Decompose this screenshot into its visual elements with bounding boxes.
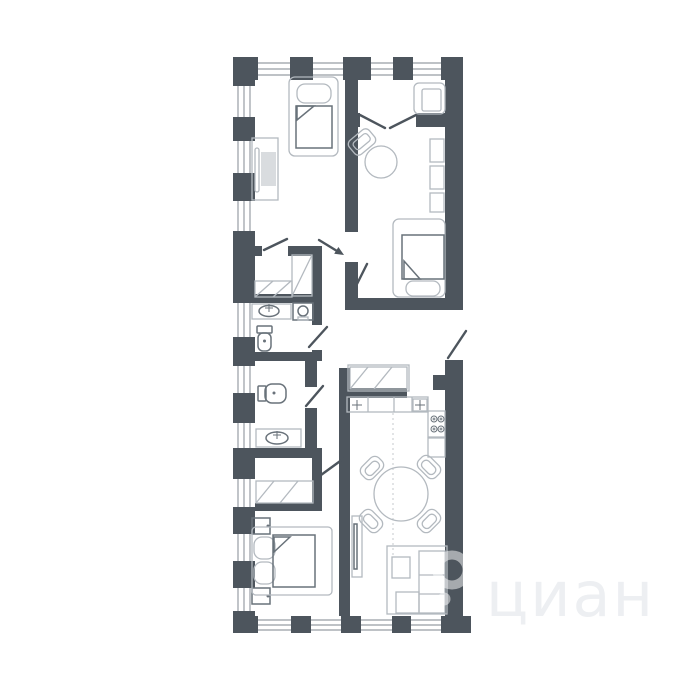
kitchen-sink-icon bbox=[352, 400, 362, 410]
room-alcove bbox=[414, 83, 445, 114]
wardrobe-hangers-icon bbox=[256, 481, 313, 503]
door-swing-icon bbox=[264, 239, 287, 250]
room-closet-upper bbox=[255, 255, 312, 297]
entrance-arrow-icon bbox=[319, 240, 344, 255]
hallway bbox=[348, 365, 409, 391]
room-kitchen-living bbox=[347, 397, 447, 614]
shelf-unit-icon bbox=[292, 255, 312, 296]
kitchen-counter-icon bbox=[347, 397, 428, 412]
dining-chair-icon bbox=[415, 507, 443, 535]
floor-plan-image: циан bbox=[0, 0, 700, 700]
bathroom-sink-icon bbox=[252, 304, 291, 319]
dining-table-icon bbox=[374, 467, 428, 521]
wardrobe-hangers-icon bbox=[348, 365, 409, 391]
single-bed-icon bbox=[393, 219, 445, 297]
door-swing-icon bbox=[390, 115, 416, 128]
single-bed-icon bbox=[289, 77, 338, 156]
floor-plan-page: циан bbox=[0, 0, 700, 700]
desk-chair-icon bbox=[255, 148, 259, 192]
toilet-icon bbox=[258, 384, 286, 403]
kitchen-sink-icon bbox=[415, 400, 425, 410]
bathroom-sink-icon bbox=[256, 429, 301, 447]
room-bedroom-top-right bbox=[346, 127, 445, 297]
door-swing-icon bbox=[360, 115, 385, 128]
double-bed-icon bbox=[252, 527, 332, 595]
tv-console-icon bbox=[352, 516, 362, 577]
washing-machine-icon bbox=[293, 303, 313, 320]
coffee-table-icon bbox=[392, 557, 410, 578]
room-bathroom-2 bbox=[256, 384, 301, 447]
door-swing-icon bbox=[309, 327, 327, 347]
watermark-text: циан bbox=[486, 558, 655, 631]
entrance-door-swing bbox=[448, 331, 466, 358]
door-swing-icon bbox=[306, 386, 323, 406]
armchair-icon bbox=[414, 83, 445, 114]
toilet-icon bbox=[257, 326, 272, 351]
room-bedroom-top-left bbox=[252, 77, 338, 200]
round-table-icon bbox=[365, 146, 397, 178]
nightstand-icon bbox=[252, 588, 270, 604]
dining-chair-icon bbox=[358, 454, 386, 482]
desk-icon bbox=[252, 138, 278, 200]
wall-shelves-icon bbox=[430, 139, 444, 212]
room-bathroom-1 bbox=[252, 303, 313, 351]
fridge-icon bbox=[428, 438, 445, 457]
stove-icon bbox=[428, 411, 445, 437]
